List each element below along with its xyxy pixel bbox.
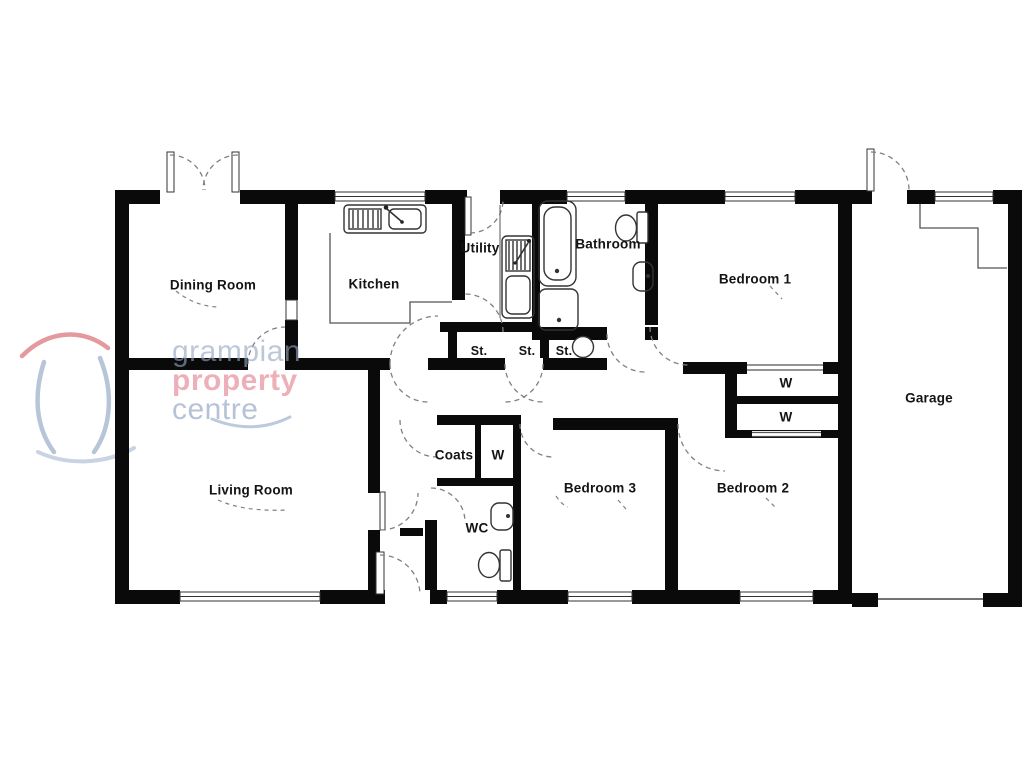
bathtub-icon [539,201,576,286]
label-store-1: St. [471,344,488,358]
label-wardrobe-hall: W [492,448,505,463]
label-store-2: St. [519,344,536,358]
room-label-garage: Garage [905,391,953,406]
room-label-dining-room: Dining Room [170,278,256,293]
room-label-bedroom-3: Bedroom 3 [564,481,636,496]
room-label-kitchen: Kitchen [349,277,400,292]
room-label-coats: Coats [435,448,474,463]
room-label-bathroom: Bathroom [575,237,640,252]
garage-step [920,204,1007,268]
label-wardrobe-bedroom-1: W [780,376,793,391]
shower-tray-icon [539,289,578,330]
label-wardrobe-bedroom-2: W [780,410,793,425]
room-label-living-room: Living Room [209,483,293,498]
logo-text-property: property [172,366,298,396]
room-label-bedroom-1: Bedroom 1 [719,272,791,287]
kitchen-sink-icon [344,205,426,233]
hot-water-tank-icon [573,337,594,358]
logo-text-grampian: grampian [172,337,301,367]
floorplan: Dining Room Kitchen Utility Bathroom Bed… [0,0,1024,768]
room-label-bedroom-2: Bedroom 2 [717,481,789,496]
utility-sink-icon [502,236,534,318]
windows [180,192,993,601]
wc-basin-icon [491,503,513,530]
logo-text-centre: centre [172,395,258,425]
room-label-utility: Utility [461,241,500,256]
label-store-3: St. [556,344,573,358]
floorplan-drawing [0,0,1024,768]
wc-toilet-icon [479,550,512,581]
room-label-wc: WC [466,521,489,536]
